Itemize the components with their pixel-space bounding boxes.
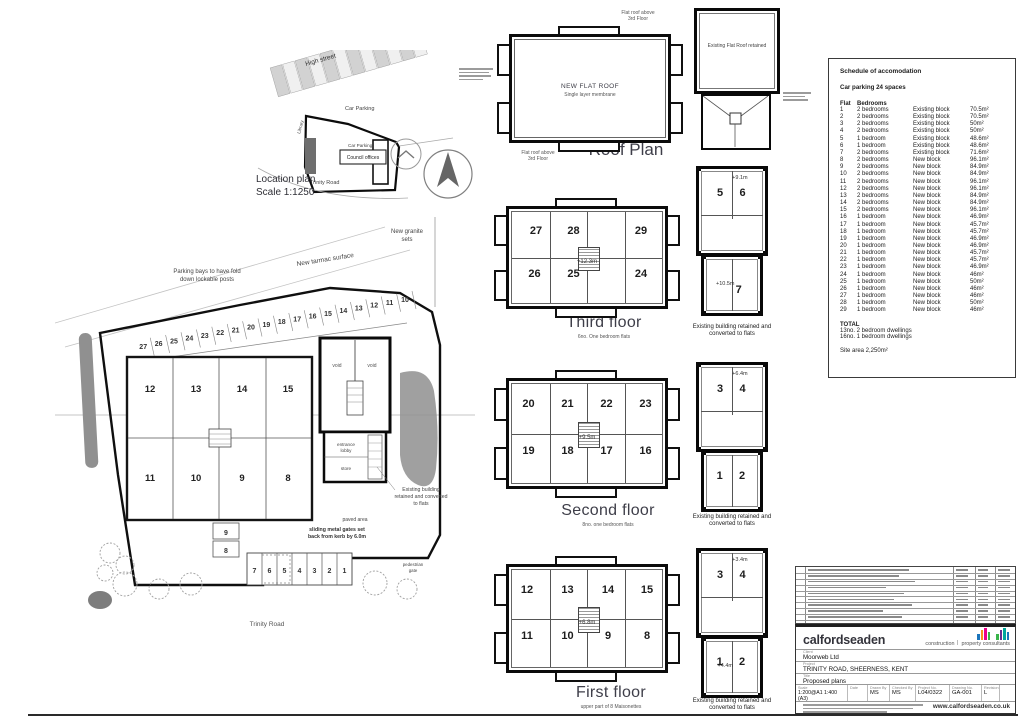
existing-note: to flats (413, 501, 429, 507)
first-floor-caption: First floor upper part of 8 Maisonettes (545, 684, 677, 710)
schedule-row: 92 bedroomsNew block84.9m² (840, 164, 1015, 171)
flat-number: 7 (736, 284, 742, 296)
parking-bay-number: 5 (283, 568, 287, 575)
field-value: MS (870, 690, 887, 696)
level-label: +3.4m (732, 557, 747, 563)
gates-note: sliding metal gates set (309, 527, 365, 533)
flat-number: 4 (739, 569, 745, 581)
schedule-row: 12 bedroomsExisting block70.5m² (840, 107, 1015, 114)
schedule-block: New block (913, 243, 970, 250)
plan-outline-inner: 12131415111098+6.8m (511, 569, 663, 668)
parking-bay-number: 12 (370, 303, 378, 310)
schedule-bedrooms: 1 bedroom (857, 222, 913, 229)
schedule-row: 102 bedroomsNew block84.9m² (840, 171, 1015, 178)
existing-caption: Existing building retained andconverted … (670, 514, 794, 528)
schedule-bedrooms: 1 bedroom (857, 136, 913, 143)
schedule-area: 71.6m² (970, 150, 1002, 157)
first-floor-title: First floor (545, 684, 677, 702)
schedule-flat-no: 20 (840, 243, 857, 250)
tagline-left: construction (925, 641, 954, 647)
schedule-block: New block (913, 250, 970, 257)
revision-text-bar (998, 616, 1010, 618)
schedule-row: 281 bedroomNew block50m² (840, 300, 1015, 307)
logo-bar (984, 628, 987, 640)
revision-text-bar (956, 599, 968, 601)
parking-bay-number: 1 (343, 568, 347, 575)
revision-text-bar (998, 610, 1010, 612)
schedule-area: 50m² (970, 300, 1002, 307)
schedule-bedrooms: 2 bedrooms (857, 107, 913, 114)
second-floor-caption: Second floor 8no. one bedroom flats (542, 502, 674, 528)
flat-number: 29 (635, 225, 647, 237)
schedule-row: 291 bedroomNew block46m² (840, 307, 1015, 314)
hip-roof-lines (703, 96, 768, 147)
parking-bay-number: 21 (232, 327, 240, 334)
existing-second-floor-plan: +6.4m3412Existing building retained andc… (686, 360, 778, 528)
existing-lower-block: +4.4m12 (701, 636, 763, 698)
flat-number: 2 (739, 470, 745, 482)
plan-outline-inner: 2021222319181716+9.5m (511, 383, 663, 484)
schedule-flat-no: 2 (840, 114, 857, 121)
roof-center-line2: Single layer membrane (515, 92, 665, 98)
field-label: Date (850, 686, 865, 690)
existing-caption-line2: converted to flats (670, 521, 794, 528)
schedule-area: 46m² (970, 307, 1002, 314)
existing-caption: Existing building retained andconverted … (670, 698, 794, 712)
flat-number: 12 (521, 584, 533, 596)
flat-number: 14 (602, 584, 614, 596)
third-floor-subtitle: 6no. One bedroom flats (538, 334, 670, 340)
schedule-row: 142 bedroomsNew block84.9m² (840, 200, 1015, 207)
schedule-area: 84.9m² (970, 171, 1002, 178)
revision-text-bar (808, 593, 904, 595)
schedule-bedrooms: 2 bedrooms (857, 128, 913, 135)
schedule-flat-no: 29 (840, 307, 857, 314)
existing-lower-block: 12 (701, 450, 763, 512)
schedule-area: 45.7m² (970, 222, 1002, 229)
field-scale: Scale1:200@A1 1:400 (A3) (796, 685, 848, 701)
parking-bay-number: 2 (328, 568, 332, 575)
parking-bay-number: 18 (278, 319, 286, 326)
library-building (305, 138, 316, 174)
revision-text-bar (808, 604, 912, 606)
schedule-row: 271 bedroomNew block46m² (840, 293, 1015, 300)
tree-icon (397, 579, 417, 599)
parking-bay-number: 3 (313, 568, 317, 575)
schedule-row: 22 bedroomsExisting block70.5m² (840, 114, 1015, 121)
existing-upper-block: +9.1m56 (696, 166, 768, 256)
schedule-area: 45.7m² (970, 250, 1002, 257)
granite-sets-label: New granite (391, 229, 424, 235)
parking-bay-number: 22 (216, 330, 224, 337)
revision-text-bar (978, 610, 988, 612)
flat-number: 10 (561, 630, 573, 642)
parking-bay-number: 7 (253, 568, 257, 575)
revision-text-bar (808, 610, 883, 612)
flat-number: 18 (561, 445, 573, 457)
schedule-bedrooms: 2 bedrooms (857, 121, 913, 128)
field-value: MS (892, 690, 913, 696)
logo-bar-group (977, 628, 990, 640)
pilaster (696, 548, 701, 553)
schedule-flat-no: 19 (840, 236, 857, 243)
revision-text-bar (956, 593, 968, 595)
field-checked-by: Checked ByMS (890, 685, 916, 701)
tagline-right: property consultants (961, 641, 1010, 647)
schedule-flat-no: 21 (840, 250, 857, 257)
schedule-area: 96.1m² (970, 186, 1002, 193)
entrance-lobby-label: lobby (341, 448, 353, 453)
schedule-bedrooms: 1 bedroom (857, 143, 913, 150)
flat-number: 6 (739, 187, 745, 199)
trinity-road-label: Trinity Road (250, 621, 285, 628)
field-value: GA-001 (952, 690, 979, 696)
schedule-block: New block (913, 200, 970, 207)
pilaster (758, 311, 763, 316)
schedule-bedrooms: 2 bedrooms (857, 164, 913, 171)
schedule-flat-no: 15 (840, 207, 857, 214)
client-value: Moorweb Ltd (803, 654, 839, 661)
revision-text-bar (998, 593, 1010, 595)
existing-note: retained and converted (394, 494, 447, 500)
schedule-block: Existing block (913, 136, 970, 143)
level-label: +12.3m (577, 259, 597, 265)
revision-text-bar (808, 616, 902, 618)
schedule-row: 161 bedroomNew block46.9m² (840, 214, 1015, 221)
plan-wall (701, 215, 763, 216)
parking-bay-number: 20 (247, 325, 255, 332)
title-block-fields: Scale1:200@A1 1:400 (A3)DateDrawn ByMSCh… (796, 684, 1015, 702)
schedule-bedrooms: 2 bedrooms (857, 193, 913, 200)
flat-number: 21 (561, 398, 573, 410)
flat-number: 9 (605, 630, 611, 642)
schedule-row: 251 bedroomNew block50m² (840, 279, 1015, 286)
parking-bay-number: 24 (186, 336, 194, 343)
schedule-row: 201 bedroomNew block46.9m² (840, 243, 1015, 250)
revision-row (796, 614, 1015, 621)
tree-icon (113, 572, 137, 596)
pilaster (758, 636, 763, 641)
schedule-block: New block (913, 286, 970, 293)
revision-text-bar (978, 575, 988, 577)
roof-center-label: NEW FLAT ROOFSingle layer membrane (515, 83, 665, 98)
schedule-row: 61 bedroomExisting block48.6m² (840, 143, 1015, 150)
site-flat-number: 9 (239, 473, 244, 484)
car-parking-label-a: Car Parking (345, 106, 375, 112)
site-flat-number: 10 (191, 473, 202, 484)
schedule-bedrooms: 1 bedroom (857, 293, 913, 300)
schedule-of-accommodation: Schedule of accomodation Car parking 24 … (828, 58, 1016, 378)
landscape-blob (400, 371, 438, 486)
schedule-row: 152 bedroomsNew block96.1m² (840, 207, 1015, 214)
revision-text-bar (998, 569, 1010, 571)
project-value: TRINITY ROAD, SHEERNESS, KENT (803, 666, 908, 673)
schedule-area: 46m² (970, 286, 1002, 293)
pilaster (701, 507, 706, 512)
schedule-row: 72 bedroomsExisting block71.6m² (840, 150, 1015, 157)
flat-number: 13 (561, 584, 573, 596)
revision-text-bar (998, 575, 1010, 577)
schedule-bedrooms: 1 bedroom (857, 236, 913, 243)
existing-roof-plan: Existing Flat Roof retained (694, 8, 780, 154)
revision-text-bar (808, 581, 915, 583)
revision-text-bar (998, 581, 1010, 583)
schedule-block: New block (913, 179, 970, 186)
logo-bar (1007, 632, 1010, 640)
plan-wall (701, 597, 763, 598)
schedule-flat-no: 9 (840, 164, 857, 171)
schedule-flat-no: 8 (840, 157, 857, 164)
schedule-block: New block (913, 307, 970, 314)
schedule-bedrooms: 2 bedrooms (857, 171, 913, 178)
existing-lower-block: +10.5m7 (701, 254, 763, 316)
schedule-bedrooms: 2 bedrooms (857, 179, 913, 186)
revision-table (795, 566, 1016, 624)
site-flat-number: 14 (237, 384, 248, 395)
schedule-bedrooms: 1 bedroom (857, 229, 913, 236)
schedule-flat-no: 7 (840, 150, 857, 157)
schedule-bedrooms: 2 bedrooms (857, 157, 913, 164)
schedule-area: 70.5m² (970, 114, 1002, 121)
level-label: +6.4m (732, 371, 747, 377)
schedule-block: Existing block (913, 121, 970, 128)
schedule-block: New block (913, 186, 970, 193)
flat-number: 1 (717, 656, 723, 668)
title-block: calfordseaden constructionproperty consu… (795, 624, 1016, 714)
parking-bay-number: 11 (386, 300, 394, 307)
pilaster (701, 450, 706, 455)
first-floor-subtitle: upper part of 8 Maisonettes (545, 704, 677, 710)
tree-icon (363, 571, 387, 595)
schedule-area: 46m² (970, 272, 1002, 279)
roof-edge-note (459, 66, 493, 82)
location-plan-caption: Location plan Scale 1:1250 (256, 173, 316, 199)
paved-area-label: paved area (342, 517, 367, 523)
revision-text-bar (808, 575, 899, 577)
schedule-flat-no: 5 (840, 136, 857, 143)
location-caption-line1: Location plan (256, 173, 316, 186)
location-caption-line2: Scale 1:1250 (256, 186, 316, 199)
revision-text-bar (956, 587, 968, 589)
flat-number: 28 (567, 225, 579, 237)
schedule-area: 96.1m² (970, 179, 1002, 186)
website: www.calfordseaden.co.uk (933, 703, 1010, 710)
schedule-block: New block (913, 222, 970, 229)
logo-bars-icon (977, 628, 1009, 640)
schedule-area: 84.9m² (970, 193, 1002, 200)
entrance-lobby-label: entrance (337, 442, 355, 447)
library-label: Library (296, 119, 305, 134)
schedule-block: New block (913, 272, 970, 279)
site-plan: 1011121314151617181920212223242526271211… (55, 205, 480, 667)
plan-wall (701, 411, 763, 412)
existing-caption-line2: converted to flats (670, 705, 794, 712)
parking-note: down lockable posts (180, 277, 234, 283)
schedule-area: 84.9m² (970, 164, 1002, 171)
first-floor-plan: 12131415111098+6.8m (494, 556, 680, 682)
flat-number: 16 (639, 445, 651, 457)
schedule-row: 231 bedroomNew block46.9m² (840, 264, 1015, 271)
revision-text-bar (978, 581, 988, 583)
plan-outline: NEW FLAT ROOFSingle layer membrane (509, 34, 671, 143)
schedule-flat-no: 24 (840, 272, 857, 279)
plan-outline: 2021222319181716+9.5m (506, 378, 668, 489)
field-date: Date (848, 685, 868, 701)
schedule-row: 261 bedroomNew block46m² (840, 286, 1015, 293)
roof-plan-drawing: NEW FLAT ROOFSingle layer membrane (497, 26, 683, 152)
plan-wall (732, 455, 733, 507)
level-label: +9.1m (732, 175, 747, 181)
site-flat-number: 13 (191, 384, 202, 395)
field-revision: RevisionL (982, 685, 1000, 701)
flat-number: 2 (739, 656, 745, 668)
tagline: constructionproperty consultants (925, 640, 1010, 647)
pilaster (763, 362, 768, 367)
schedule-flat-no: 18 (840, 229, 857, 236)
schedule-flat-no: 22 (840, 257, 857, 264)
flat-number: 3 (717, 383, 723, 395)
schedule-bedrooms: 2 bedrooms (857, 186, 913, 193)
schedule-bedrooms: 1 bedroom (857, 264, 913, 271)
existing-caption-line1: Existing building retained and (670, 324, 794, 331)
schedule-bedrooms: 1 bedroom (857, 214, 913, 221)
existing-caption-line1: Existing building retained and (670, 514, 794, 521)
level-label: +10.5m (716, 281, 735, 287)
parking-bay-number: 4 (298, 568, 302, 575)
existing-third-floor-plan: +9.1m56+10.5m7Existing building retained… (686, 164, 778, 338)
parking-bay-number: 14 (340, 308, 348, 315)
drawing-sheet: High street Car Parking Car Parking Libr… (0, 0, 1024, 720)
revision-text-bar (808, 587, 886, 589)
flat-number: 11 (521, 630, 533, 642)
parking-bay-number: 25 (170, 338, 178, 345)
pedestrian-gate-label: pedestrian (403, 562, 424, 567)
void-label: void (332, 363, 341, 369)
parking-bay-number: 27 (139, 344, 147, 351)
schedule-area: 46m² (970, 293, 1002, 300)
plan-outline: 272829262524+12.3m (506, 206, 668, 309)
landscape-blob-small (88, 591, 112, 609)
field-project-no: Project No.L04/0322 (916, 685, 950, 701)
parking-bay-number: 17 (293, 316, 301, 323)
schedule-row: 112 bedroomsNew block96.1m² (840, 179, 1015, 186)
schedule-flat-no: 4 (840, 128, 857, 135)
second-floor-plan: 2021222319181716+9.5m (494, 370, 680, 498)
flat-number: 3 (717, 569, 723, 581)
schedule-area: 50m² (970, 128, 1002, 135)
car-parking-note: Car parking 24 spaces (840, 84, 1015, 91)
revision-text-bar (808, 599, 894, 601)
schedule-block: New block (913, 171, 970, 178)
revision-text-bar (998, 604, 1010, 606)
level-label: +6.8m (579, 620, 596, 626)
logo-bar (1003, 628, 1006, 640)
revision-text-bar (978, 604, 988, 606)
schedule-row: 42 bedroomsExisting block50m² (840, 128, 1015, 135)
plan-outline: 12131415111098+6.8m (506, 564, 668, 673)
level-label: +9.5m (579, 435, 596, 441)
schedule-block: New block (913, 193, 970, 200)
field-value: L (984, 690, 997, 696)
schedule-area: 46.9m² (970, 236, 1002, 243)
revision-text-bar (978, 587, 988, 589)
schedule-row: 171 bedroomNew block45.7m² (840, 222, 1015, 229)
logo-bar (1000, 630, 1003, 640)
schedule-bedrooms: 1 bedroom (857, 243, 913, 250)
schedule-flat-no: 11 (840, 179, 857, 186)
third-floor-plan: 272829262524+12.3m (494, 198, 680, 318)
site-flat-number: 11 (145, 473, 156, 484)
council-offices-label: Council offices (347, 155, 380, 161)
schedule-block: Existing block (913, 150, 970, 157)
flat-number: 8 (644, 630, 650, 642)
schedule-block: Existing block (913, 128, 970, 135)
schedule-block: New block (913, 157, 970, 164)
schedule-block: Existing block (913, 114, 970, 121)
revision-text-bar (956, 581, 968, 583)
schedule-row: 82 bedroomsNew block96.1m² (840, 157, 1015, 164)
flat-number: 22 (600, 398, 612, 410)
schedule-rows: 12 bedroomsExisting block70.5m²22 bedroo… (840, 107, 1015, 315)
schedule-area: 45.7m² (970, 229, 1002, 236)
hedge (79, 333, 99, 468)
schedule-block: New block (913, 207, 970, 214)
schedule-row: 241 bedroomNew block46m² (840, 272, 1015, 279)
schedule-flat-no: 6 (840, 143, 857, 150)
parking-bay-number: 26 (155, 341, 163, 348)
high-street-buildings (270, 50, 427, 97)
parking-note: Parking bays to have fold (173, 269, 240, 275)
field-drawn-by: Drawn ByMS (868, 685, 890, 701)
schedule-area: 48.6m² (970, 143, 1002, 150)
schedule-bedrooms: 1 bedroom (857, 257, 913, 264)
pilaster (701, 311, 706, 316)
plan-outline-inner: 272829262524+12.3m (511, 211, 663, 304)
schedule-flat-no: 14 (840, 200, 857, 207)
pilaster (763, 548, 768, 553)
revision-text-bar (978, 616, 988, 618)
schedule-flat-no: 25 (840, 279, 857, 286)
tree-icon (97, 565, 113, 581)
schedule-flat-no: 3 (840, 121, 857, 128)
schedule-block: New block (913, 293, 970, 300)
pilaster (701, 254, 706, 259)
schedule-block: Existing block (913, 143, 970, 150)
flat-number: 20 (522, 398, 534, 410)
flat-number: 25 (567, 268, 579, 280)
schedule-bedrooms: 1 bedroom (857, 279, 913, 286)
pilaster (701, 636, 706, 641)
schedule-flat-no: 23 (840, 264, 857, 271)
tree-icon (149, 579, 169, 599)
parking-bay-number: 23 (201, 333, 209, 340)
existing-upper-block: +3.4m34 (696, 548, 768, 638)
pilaster (758, 254, 763, 259)
schedule-row: 51 bedroomExisting block48.6m² (840, 136, 1015, 143)
address-microprint (803, 702, 923, 715)
schedule-bedrooms: 2 bedrooms (857, 200, 913, 207)
flat-number: 1 (717, 470, 723, 482)
schedule-area: 50m² (970, 121, 1002, 128)
schedule-block: New block (913, 214, 970, 221)
schedule-bedrooms: 1 bedroom (857, 250, 913, 257)
schedule-area: 45.7m² (970, 257, 1002, 264)
schedule-flat-no: 28 (840, 300, 857, 307)
schedule-area: 96.1m² (970, 207, 1002, 214)
schedule-row: 191 bedroomNew block46.9m² (840, 236, 1015, 243)
revision-text-bar (998, 587, 1010, 589)
schedule-bedrooms: 2 bedrooms (857, 150, 913, 157)
